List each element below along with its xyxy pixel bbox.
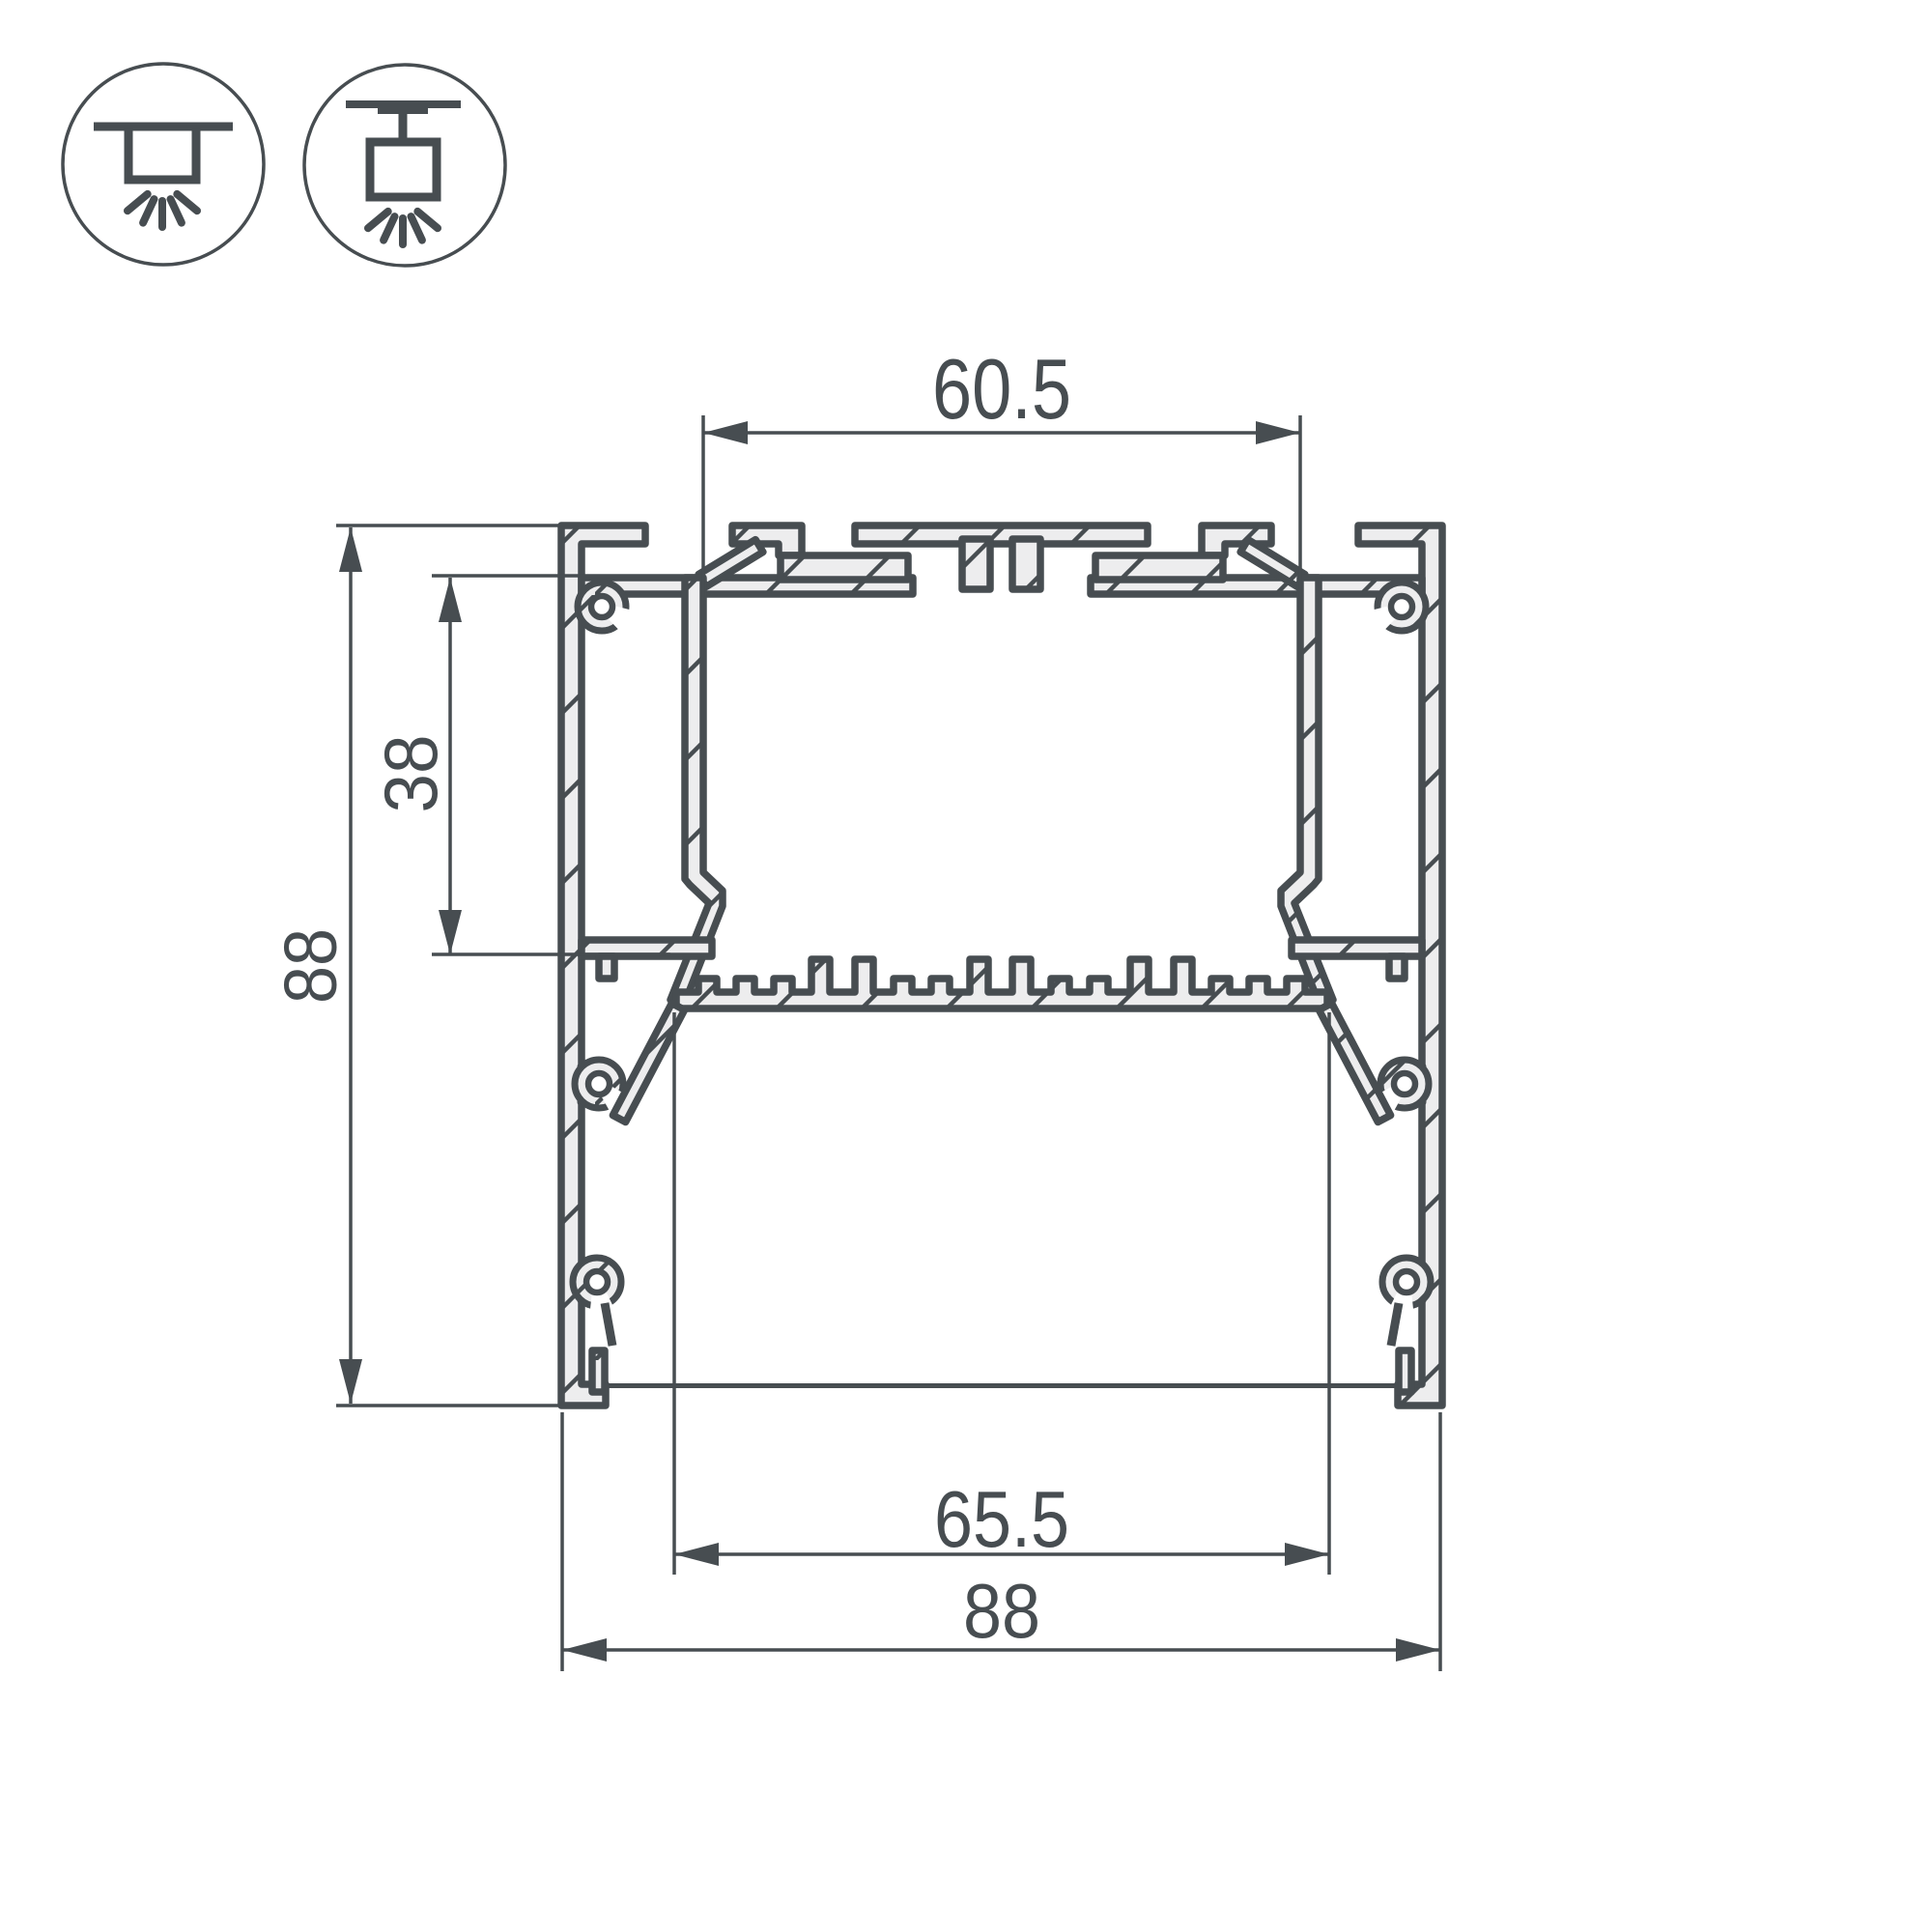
- svg-text:88: 88: [270, 928, 353, 1004]
- svg-text:88: 88: [963, 1568, 1040, 1654]
- svg-text:65.5: 65.5: [934, 1474, 1069, 1564]
- svg-text:38: 38: [368, 735, 453, 813]
- svg-text:60.5: 60.5: [932, 341, 1071, 437]
